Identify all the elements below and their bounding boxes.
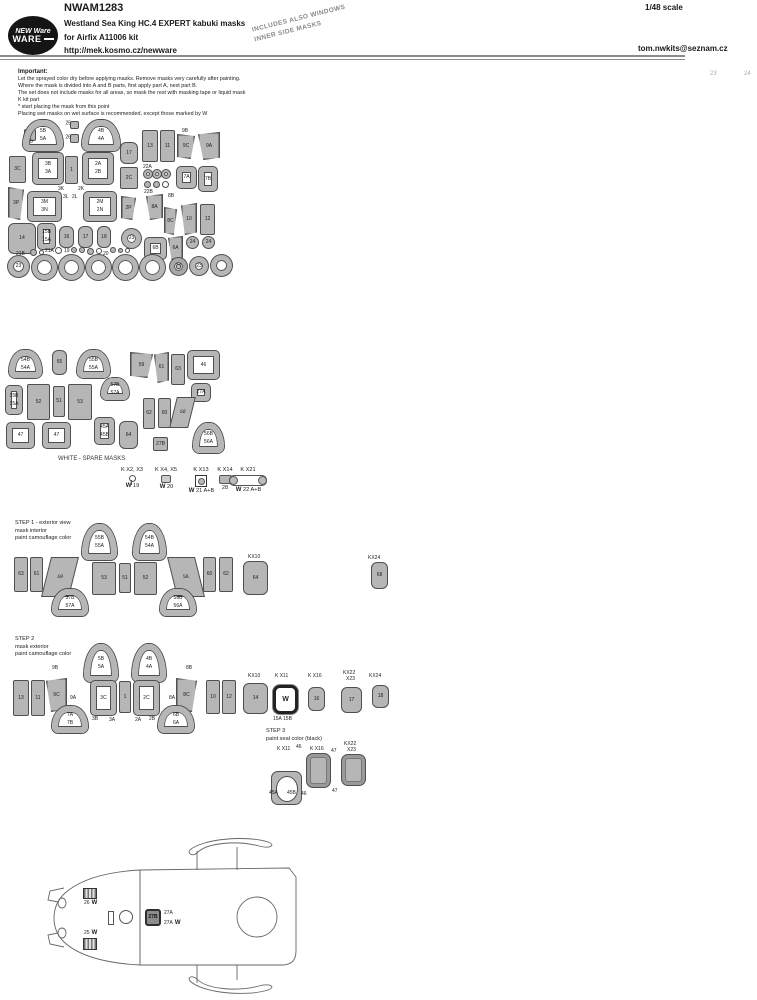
mask-label: 55A: [95, 544, 104, 549]
sheet1-3m-mask: 3M3N: [28, 192, 61, 221]
sheet1-24-mask: 24: [186, 236, 199, 249]
step2-8a-label: 8A: [169, 695, 175, 701]
step2-3a-label: 3A: [109, 717, 115, 723]
sheet1-19-label: 19: [64, 248, 70, 254]
sheet1-7a-mask: 7A: [177, 167, 196, 188]
mask-label: 63: [18, 572, 24, 577]
mask-label: 60: [162, 411, 168, 416]
mask-label: 13: [18, 696, 24, 701]
mask-label: 57B: [111, 383, 120, 388]
wet-application-icon: W: [92, 930, 98, 936]
sheet1-16-mask: 16: [59, 226, 74, 248]
step3-45a-label: 45A: [269, 790, 278, 796]
step3-k-x11-label: K X11: [277, 746, 290, 752]
mask-label: 24: [190, 240, 196, 245]
mask-label: 68: [377, 573, 383, 578]
sheet1-sring-mask: [153, 170, 161, 178]
product-code: NWAM1283: [64, 2, 123, 14]
sheet1-9a-mask: 9A: [198, 132, 220, 160]
mask-label: 17: [126, 151, 132, 156]
sheet1-ring-mask: [113, 255, 138, 280]
mask-label: 27B: [148, 915, 157, 920]
step1-63-mask: 63: [14, 557, 28, 592]
sheet1-2k-label: 2K: [78, 186, 84, 192]
wet-application-icon: W: [236, 487, 242, 493]
step2-title-line: mask exterior: [15, 644, 71, 652]
chip-part-icon: [161, 475, 171, 483]
sheet1-circle-mask: [71, 247, 77, 253]
mask-label: 7A: [183, 175, 189, 180]
important-line: Placing wet masks on wet surface is reco…: [18, 111, 318, 118]
mask-label: 6A: [173, 721, 179, 726]
important-line: The set does not include masks for all a…: [18, 90, 318, 97]
mask-label: 8C: [167, 219, 173, 224]
lower-sponson: [189, 977, 272, 994]
sheet1-hcircle-mask: [162, 181, 169, 188]
mask-label: 54B: [21, 358, 30, 363]
step1-61-mask: 61: [30, 557, 43, 592]
mask-label: 5B: [98, 657, 104, 662]
mask-label: 12: [205, 217, 211, 222]
mask-label: 6A: [172, 246, 178, 251]
mask-label: 53: [101, 576, 107, 581]
mask-label: 24: [176, 264, 182, 269]
sheet1-8b-label: 8B: [168, 193, 174, 199]
sheet1-24-mask: 24: [170, 258, 187, 275]
sheet2-59-mask: 59: [130, 352, 153, 378]
sheet1-11-mask: 11: [160, 130, 175, 162]
sheet2-51-mask: 51: [53, 386, 65, 417]
step2-title-line: STEP 2: [15, 636, 71, 644]
step2-4b-mask: 4B4A: [132, 644, 166, 682]
step2-kx24-label: KX24: [369, 673, 381, 679]
mask-label: 3B: [45, 162, 51, 167]
sheet2-46-mask: 46: [188, 351, 219, 379]
sheet1-10-mask: 10: [181, 203, 197, 235]
upper-sponson: [189, 839, 272, 855]
step2-5b-mask: 5B5A: [84, 644, 118, 682]
step2-x23-label: X23: [346, 676, 355, 682]
step2-10-mask: 10: [206, 680, 220, 714]
sheet1-26-mask: 26: [70, 134, 79, 143]
sheet1-17-mask: 17: [120, 142, 138, 164]
mask-label: 55A: [89, 366, 98, 371]
step2-title: STEP 2 mask exterior paint camouflage co…: [15, 636, 71, 659]
heli-27b-mask: 27B: [145, 909, 161, 926]
sheet1-12-mask: 12: [200, 204, 215, 235]
sheet1-17-mask: 17: [78, 226, 93, 248]
step2-9a-label: 9A: [70, 695, 76, 701]
mask-number-note: W 22 A+B: [226, 487, 270, 493]
kit-part-label: K X21: [226, 467, 270, 473]
mask-label: 25: [65, 122, 71, 127]
mask-label: 5A: [98, 665, 104, 670]
mask-label: 56B: [174, 596, 183, 601]
sheet2-63-mask: 63: [171, 354, 185, 385]
step2-2a-label: 2A: [135, 717, 141, 723]
sheet1-ring-mask: [140, 255, 165, 280]
mask-label: 2A: [95, 162, 101, 167]
instruction-sheet: NEW Ware WARE NWAM1283 Westland Sea King…: [0, 0, 757, 1000]
mask-label: 4B: [146, 657, 152, 662]
mask-label: 55B: [89, 358, 98, 363]
mask-label: 56A: [174, 604, 183, 609]
mask-label: 7A: [67, 713, 73, 718]
mask-label: 54A: [21, 366, 30, 371]
mask-label: 54B: [145, 536, 154, 541]
sheet1-2a-mask: 2A2B: [83, 153, 113, 184]
mask-label: 11: [165, 144, 170, 149]
mask-label: 53: [77, 400, 83, 405]
step3-46-label: 46: [301, 791, 307, 797]
mask-label: 51: [56, 399, 62, 404]
step1-51-mask: 51: [119, 563, 131, 593]
mask-label: 3C: [14, 167, 20, 172]
mask-label: 9A: [206, 144, 212, 149]
step2-3b-label: 3B: [92, 716, 98, 722]
heli-27a-label: 27AW: [164, 920, 181, 926]
step2-1-mask: 1: [119, 681, 131, 713]
heli-striped-mask: [83, 938, 97, 950]
mask-label: 18: [101, 235, 107, 240]
step1-55b-mask: 55B55A: [82, 524, 117, 560]
sheet1-23-mask: 23: [8, 256, 29, 277]
mask-label: 23: [129, 236, 135, 241]
mask-label: 23: [16, 264, 22, 269]
mask-label: 56A: [204, 440, 213, 445]
step1-title-line: paint camouflage color: [15, 535, 71, 543]
step1-60-mask: 60: [203, 557, 216, 592]
website-url: http://mek.kosmo.cz/newware: [64, 46, 177, 55]
sheet2-61-mask: 61: [154, 352, 169, 383]
sheet1-25-mask: 25: [70, 121, 79, 129]
sheet1-9b-label: 9B: [182, 128, 188, 134]
mask-label: 47: [18, 433, 24, 438]
mask-label: 56B: [204, 432, 213, 437]
sheet1-3p-mask: 3P: [8, 187, 24, 220]
step2-14-mask: 14: [243, 683, 268, 714]
stamp-note: INCLUDES ALSO WINDOWS INNER SIDE MASKS: [251, 3, 349, 45]
heli-oval-mask: [119, 910, 133, 924]
sheet1-8c-mask: 8C: [164, 207, 177, 235]
wet-application-icon: W: [160, 484, 166, 490]
step2-k-x16-label: K X16: [308, 673, 322, 679]
step2-kx10-label: KX10: [248, 673, 260, 679]
sheet1-hcircle-mask: [96, 248, 102, 254]
mask-label: 61: [159, 365, 165, 370]
step1-52-mask: 52: [134, 562, 157, 595]
fuselage: [140, 868, 296, 965]
important-note: Important: Let the sprayed color dry bef…: [18, 69, 318, 118]
step2-9b-label: 9B: [52, 665, 58, 671]
sheet1-circle-mask: [79, 247, 85, 253]
nose-window: [58, 928, 66, 938]
step3-frame-fill-mask: [306, 753, 331, 788]
nose-bump: [48, 888, 64, 902]
mask-label: 57A: [66, 604, 75, 609]
sheet1-24-mask: 24: [202, 236, 215, 249]
sheet2-58-mask: 58: [169, 397, 196, 428]
step2-13-mask: 13: [13, 680, 29, 716]
sheet2-64-mask: 64: [119, 421, 138, 449]
mask-label: 47: [54, 433, 60, 438]
mask-label: 4A: [146, 665, 152, 670]
sheet2-55b-mask: 55B55A: [77, 350, 110, 378]
step2-2c-mask: 2C: [134, 681, 159, 715]
scale-label: 1/48 scale: [645, 3, 683, 12]
mask-label: 4B: [98, 129, 104, 134]
mask-label: 2N: [97, 208, 103, 213]
mask-label: 64: [126, 433, 132, 438]
heli-outline-mask: [108, 911, 114, 925]
sheet1-7b-mask: 7B: [199, 167, 217, 191]
mask-label: 52: [143, 576, 149, 581]
step1-54b-mask: 54B54A: [133, 524, 166, 560]
sheet1-hcircle-mask: [55, 247, 62, 254]
sheet1-18-mask: 18: [97, 226, 111, 248]
logo-text-bottom: WARE: [13, 35, 54, 44]
mask-label: 62: [146, 411, 152, 416]
step1-title-line: STEP 1 - exterior view: [15, 520, 71, 528]
mask-label: 13: [147, 144, 153, 149]
sheet2-65-mask: 65: [52, 350, 67, 375]
sheet2-53-mask: 53: [68, 384, 92, 420]
mask-label: 16: [64, 235, 70, 240]
mask-label: 52: [36, 400, 42, 405]
mask-label: 14: [253, 696, 259, 701]
step2-k-x11-label: K X11: [275, 673, 288, 679]
step3-47-label: 47: [331, 748, 337, 754]
mask-label: 17: [83, 235, 89, 240]
mask-label: 15A: [42, 238, 51, 243]
mask-label: 16: [314, 697, 320, 702]
page-ref-right: 24: [744, 71, 751, 77]
important-line: K kit part: [18, 97, 318, 104]
mask-label: 55B: [95, 536, 104, 541]
mask-label: 24: [206, 240, 212, 245]
mask-label: 3M: [41, 200, 48, 205]
mask-label: 3P: [13, 201, 19, 206]
mask-label: 1: [70, 168, 73, 173]
sheet2-62-mask: 62: [143, 398, 155, 429]
sheet1-23-mask: 23: [190, 257, 208, 275]
step2-18-mask: 18: [372, 685, 389, 708]
mask-label: 59: [57, 575, 64, 580]
step2-16-mask: 16: [308, 687, 325, 711]
step1-kx24-label: KX24: [368, 555, 380, 561]
sheet1-9c-mask: 9C: [177, 134, 195, 159]
sheet2-15b-mask: 15B15A: [6, 386, 22, 414]
sheet1-2m-mask: 2M2N: [84, 192, 116, 221]
nose-window: [58, 898, 66, 908]
mask-label: 2C: [143, 696, 149, 701]
mask-label: 4A: [98, 137, 104, 142]
mask-label: 2M: [97, 200, 104, 205]
step3-46-label: 46: [296, 744, 302, 750]
mask-label: 27B: [156, 442, 165, 447]
mask-label: 58: [179, 410, 186, 415]
step1-title-line: mask interior: [15, 528, 71, 536]
important-line: Let the sprayed color dry before applyin…: [18, 76, 318, 83]
sheet1-8a-mask: 8A: [146, 194, 163, 220]
sheet2-47-mask: 47: [7, 423, 34, 448]
step2-8b-label: 8B: [186, 665, 192, 671]
mask-label: 64: [253, 576, 259, 581]
sheet2-47-mask: 47: [43, 423, 70, 448]
sheet1-21a-label: 21A: [45, 248, 54, 254]
sheet1-3c-mask: 3C: [9, 156, 26, 183]
sheet2-56b-mask: 56B56A: [193, 423, 224, 453]
step2-12-mask: 12: [222, 680, 236, 714]
mask-label: 15B: [10, 394, 19, 399]
step3-title-line: STEP 3: [266, 728, 322, 736]
step2-15a-15b-label: 15A 15B: [273, 716, 292, 722]
pin-part-icon: [129, 475, 136, 482]
sheet1-5b-mask: 5B5A: [23, 120, 63, 151]
heli-25-label: 25W: [84, 930, 97, 936]
step3-x23-label: X23: [347, 747, 356, 753]
spare-masks-caption: WHITE - SPARE MASKS: [58, 456, 125, 462]
mask-label: 9C: [53, 693, 59, 698]
dumbbell-part-icon: [229, 475, 267, 486]
mask-label: 51: [122, 576, 128, 581]
sheet1-3k-label: 3K: [58, 186, 64, 192]
step1-57b-mask: 57B57A: [52, 589, 88, 616]
step1-53-mask: 53: [92, 562, 116, 595]
kit-ref-k-x21: K X21W 22 A+B: [226, 467, 270, 493]
sheet1-circle-mask: [87, 248, 94, 255]
step1-68-mask: 68: [371, 562, 388, 589]
sheet1-hcircle-mask: [125, 248, 130, 253]
mask-label: 11: [35, 696, 40, 701]
wet-application-icon: W: [92, 900, 98, 906]
contact-email: tom.nwkits@seznam.cz: [638, 44, 728, 53]
mask-label: 3C: [100, 696, 106, 701]
mask-label: 1: [124, 695, 127, 700]
mask-label: 6B: [173, 713, 179, 718]
sheet1-circle-mask: [144, 181, 151, 188]
mask-label: 3N: [41, 208, 47, 213]
sheet1-ring-mask: [86, 255, 111, 280]
sheet1-2l-label: 2L: [72, 194, 78, 200]
mask-label: 5A: [40, 137, 46, 142]
sheet1-ring-mask: [59, 255, 84, 280]
mask-label: 5B: [40, 129, 46, 134]
sheet1-sring-mask: [162, 170, 170, 178]
mask-label: 15B: [42, 230, 51, 235]
heli-striped-mask: [83, 888, 97, 899]
mask-label: 27A: [197, 390, 206, 395]
mask-label: 15A: [10, 402, 19, 407]
wet-application-icon: W: [189, 488, 195, 494]
step2-2b-label: 2B: [149, 716, 155, 722]
mask-label: 63: [175, 367, 181, 372]
header-divider: [0, 55, 685, 60]
mask-label: 65: [57, 360, 63, 365]
sheet1-2c-mask: 2C: [120, 167, 138, 189]
sheet1-23-mask: 23: [122, 229, 141, 248]
heli-26-label: 26W: [84, 900, 97, 906]
sheet2-27b-mask: 27B: [153, 437, 168, 451]
sheet1-13-mask: 13: [142, 130, 158, 162]
sheet1-circle-mask: [118, 248, 123, 253]
newware-logo: NEW Ware WARE: [8, 16, 58, 55]
mask-label: 59: [139, 363, 145, 368]
mask-label: 6B: [152, 246, 158, 251]
mask-label: 61: [34, 572, 40, 577]
mask-label: 2C: [126, 176, 132, 181]
sheet1-ring-mask: [32, 255, 57, 280]
wet-application-icon: W: [175, 920, 181, 926]
mask-label: 2B: [95, 170, 101, 175]
mask-label: 45A: [100, 425, 109, 430]
mask-label: 46: [201, 363, 207, 368]
mask-label: 45B: [100, 433, 109, 438]
important-line: * start placing the mask from this point: [18, 104, 318, 111]
step2-title-line: paint camouflage color: [15, 651, 71, 659]
mask-label: 57B: [66, 596, 75, 601]
mask-label: 57A: [111, 391, 120, 396]
sheet1-3b-mask: 3B3A: [33, 153, 63, 184]
rotor-hub: [237, 897, 277, 937]
sheet1-circle-mask: [30, 249, 37, 256]
mask-label: 8C: [183, 693, 189, 698]
step3-title-line: paint seal color (black): [266, 736, 322, 744]
step3-frame-fill-mask: [341, 754, 366, 786]
step2-3c-mask: 3C: [91, 681, 116, 715]
step1-62-mask: 62: [219, 557, 233, 592]
sheet1-1-mask: 1: [65, 156, 78, 184]
mask-label: 26: [65, 135, 71, 140]
mask-label: 60: [207, 572, 213, 577]
step3-title: STEP 3 paint seal color (black): [266, 728, 322, 743]
step3-45b-label: 45B: [287, 790, 296, 796]
mask-label: 58: [183, 575, 190, 580]
step3-k-x16-label: K X16: [310, 746, 324, 752]
mask-label: 12: [226, 695, 232, 700]
sheet1-22b-label: 22B: [144, 189, 153, 195]
sheet2-54b-mask: 54B54A: [9, 350, 42, 378]
mask-label: 10: [186, 217, 192, 222]
sheet2-52-mask: 52: [27, 384, 50, 420]
sheet2-45a-mask: 45A45B: [95, 418, 114, 444]
sheet1-3l-label: 3L: [63, 194, 69, 200]
step2-11-mask: 11: [31, 680, 45, 716]
seal-oval: [276, 776, 298, 802]
mask-label: 23: [196, 264, 202, 269]
mask-label: 3A: [45, 170, 51, 175]
step3-47-label: 47: [332, 788, 338, 794]
sheet1-circle-mask: [110, 247, 116, 253]
sheet1-2p-mask: 2P: [121, 196, 136, 220]
mask-label: 7B: [67, 721, 73, 726]
mask-label: 18: [378, 694, 384, 699]
step1-title: STEP 1 - exterior view mask interior pai…: [15, 520, 71, 543]
important-line: Where the mask is divided into A and B p…: [18, 83, 318, 90]
mask-label: 10: [210, 695, 216, 700]
heli-27a-label: 27A: [164, 910, 173, 916]
mask-label: 62: [223, 572, 229, 577]
sheet1-circle-mask: [153, 181, 160, 188]
step1-64-mask: 64: [243, 561, 268, 595]
step2-w-mask: W: [273, 685, 298, 714]
sheet2-57b-mask: 57B57A: [101, 378, 129, 400]
step1-kx10-label: KX10: [248, 554, 260, 560]
mask-label: 14: [19, 236, 25, 241]
mask-label: W: [282, 696, 289, 703]
product-title: Westland Sea King HC.4 EXPERT kabuki mas…: [64, 19, 245, 28]
sheet1-4b-mask: 4B4A: [82, 120, 120, 151]
